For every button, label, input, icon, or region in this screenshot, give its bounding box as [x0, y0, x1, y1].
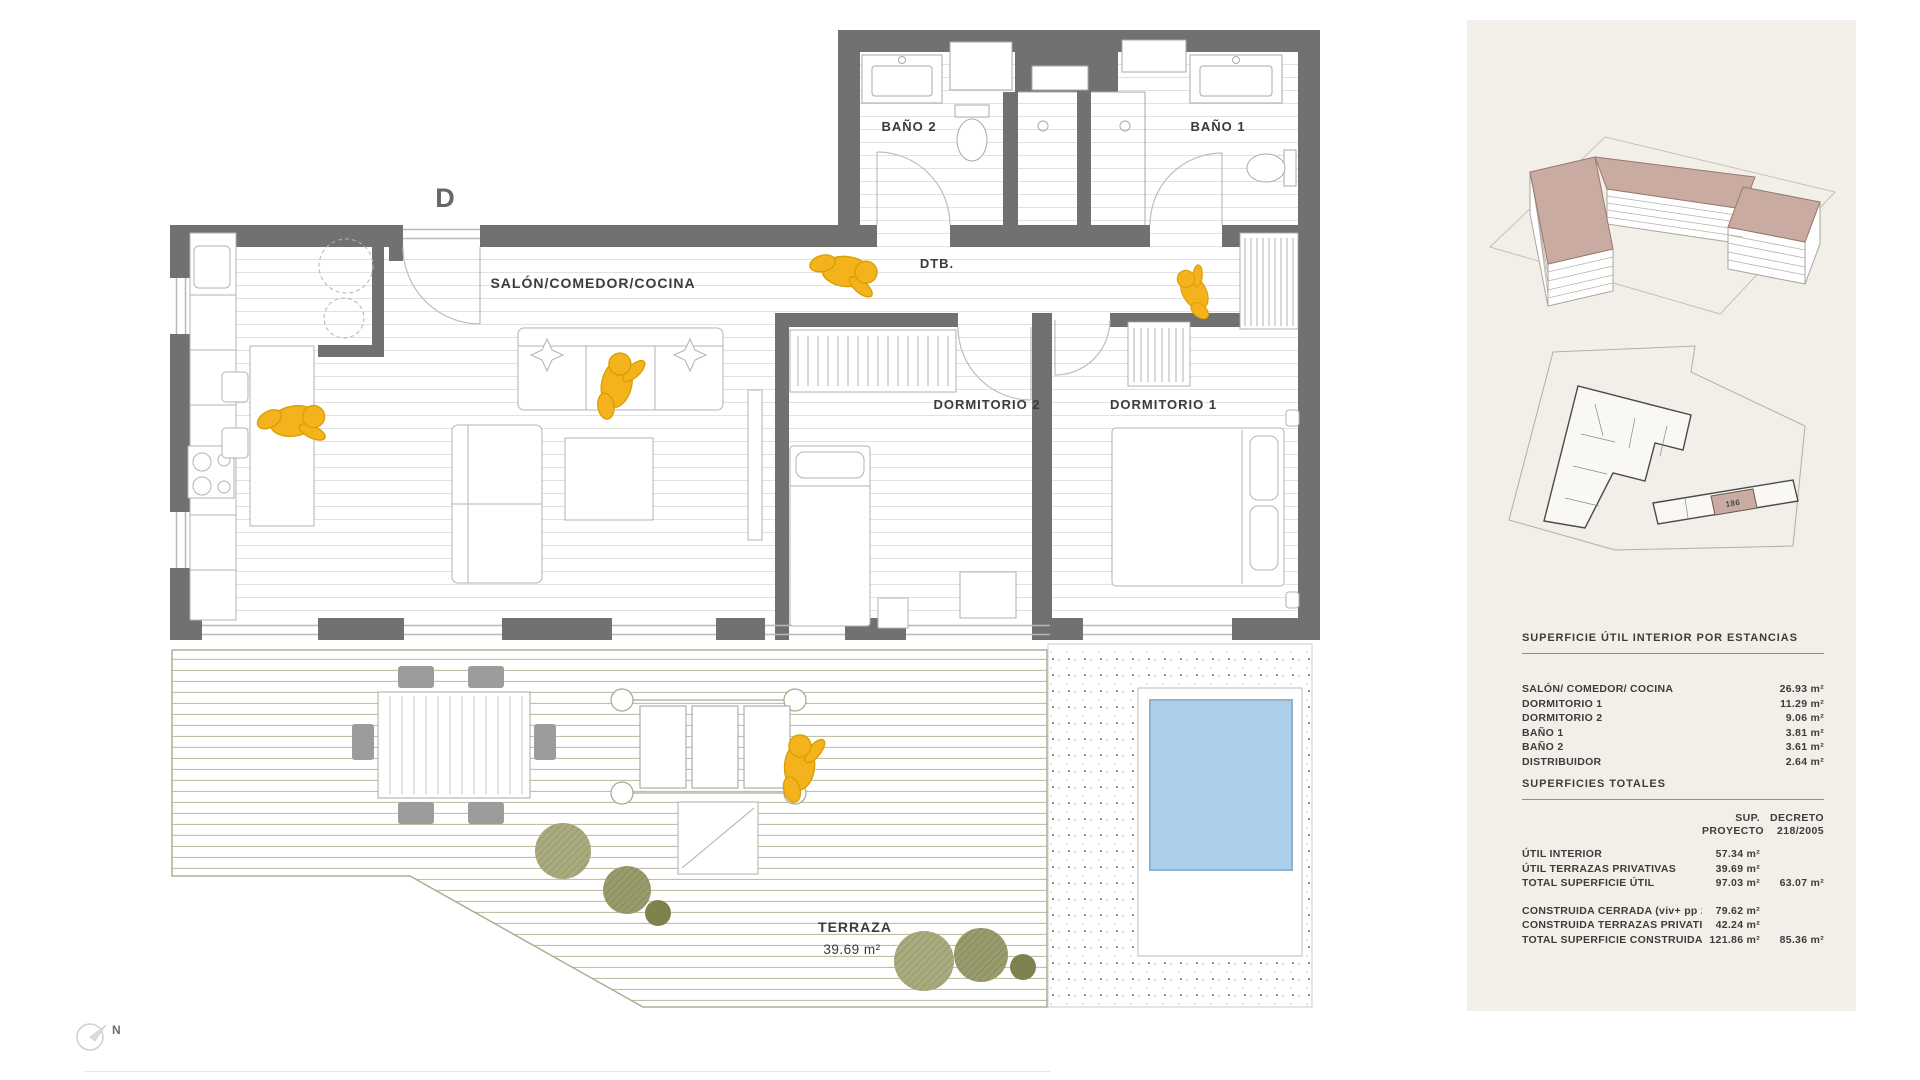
area-row: BAÑO 13.81 m² — [1522, 726, 1824, 741]
area-row-label: DORMITORIO 2 — [1522, 711, 1754, 726]
label-bano1: BAÑO 1 — [1190, 119, 1245, 134]
bedroom1-furniture — [1112, 410, 1299, 608]
label-dtb: DTB. — [920, 256, 954, 271]
area-row-label: DISTRIBUIDOR — [1522, 755, 1754, 770]
area-row-value: 3.81 m² — [1754, 726, 1824, 741]
totals-row-proyecto: 39.69 m² — [1702, 862, 1760, 877]
totals-row-proyecto: 57.34 m² — [1702, 847, 1760, 862]
totals-row-decreto: 63.07 m² — [1766, 876, 1824, 891]
floorplan-page: N D SALÓN/COMEDOR/COCINA BAÑO 2 BAÑO 1 D… — [0, 0, 1920, 1080]
terrace-daybed — [611, 689, 806, 804]
totals-table: SUPERFICIES TOTALES SUP. PROYECTO DECRET… — [1522, 778, 1824, 948]
totals-row-proyecto: 79.62 m² — [1702, 904, 1760, 919]
totals-row-label: TOTAL SUPERFICIE ÚTIL — [1522, 876, 1702, 891]
totals-row: CONSTRUIDA CERRADA (viv+ pp zzcc)79.62 m… — [1522, 904, 1824, 919]
unit-letter-label: D — [435, 183, 457, 213]
area-row: DORMITORIO 29.06 m² — [1522, 711, 1824, 726]
label-dorm2: DORMITORIO 2 — [933, 397, 1040, 412]
area-row-label: DORMITORIO 1 — [1522, 697, 1754, 712]
totals-row-label: TOTAL SUPERFICIE CONSTRUIDA — [1522, 933, 1702, 948]
col-header-proyecto: SUP. PROYECTO — [1702, 812, 1760, 838]
area-row-label: BAÑO 1 — [1522, 726, 1754, 741]
totals-row: CONSTRUIDA TERRAZAS PRIVATIVAS42.24 m² — [1522, 918, 1824, 933]
area-row-value: 2.64 m² — [1754, 755, 1824, 770]
col-header-decreto: DECRETO 218/2005 — [1766, 812, 1824, 838]
area-row-value: 9.06 m² — [1754, 711, 1824, 726]
swimming-pool — [1150, 700, 1292, 870]
info-sidebar: 186 SUPERFICIE ÚTIL INTERIOR POR ESTANCI… — [1467, 20, 1856, 1011]
page-bottom-rule — [85, 1071, 1050, 1072]
totals-row-proyecto: 97.03 m² — [1702, 876, 1760, 891]
totals-row: TOTAL SUPERFICIE CONSTRUIDA121.86 m²85.3… — [1522, 933, 1824, 948]
totals-col-headers: SUP. PROYECTO DECRETO 218/2005 — [1522, 812, 1824, 838]
totals-row-label: ÚTIL TERRAZAS PRIVATIVAS — [1522, 862, 1702, 877]
label-salon: SALÓN/COMEDOR/COCINA — [490, 274, 695, 291]
totals-table-title: SUPERFICIES TOTALES — [1522, 778, 1824, 800]
area-row: SALÓN/ COMEDOR/ COCINA26.93 m² — [1522, 682, 1824, 697]
label-bano2: BAÑO 2 — [881, 119, 936, 134]
totals-row: ÚTIL TERRAZAS PRIVATIVAS39.69 m² — [1522, 862, 1824, 877]
area-row-label: SALÓN/ COMEDOR/ COCINA — [1522, 682, 1754, 697]
floorplan-drawing: N D SALÓN/COMEDOR/COCINA BAÑO 2 BAÑO 1 D… — [0, 0, 1467, 1080]
area-row: BAÑO 23.61 m² — [1522, 740, 1824, 755]
totals-row-label: CONSTRUIDA TERRAZAS PRIVATIVAS — [1522, 918, 1702, 933]
totals-row-proyecto: 42.24 m² — [1702, 918, 1760, 933]
area-row: DORMITORIO 111.29 m² — [1522, 697, 1824, 712]
totals-row-label: ÚTIL INTERIOR — [1522, 847, 1702, 862]
label-terraza: TERRAZA — [818, 919, 892, 935]
label-terraza-area: 39.69 m² — [823, 942, 880, 957]
terrace-lounger — [678, 802, 758, 874]
room-areas-table: SUPERFICIE ÚTIL INTERIOR POR ESTANCIAS S… — [1522, 632, 1824, 770]
area-row: DISTRIBUIDOR2.64 m² — [1522, 755, 1824, 770]
north-label: N — [112, 1023, 121, 1037]
north-arrow: N — [77, 1023, 121, 1050]
label-dorm1: DORMITORIO 1 — [1110, 397, 1217, 412]
totals-row-proyecto: 121.86 m² — [1702, 933, 1760, 948]
totals-row: TOTAL SUPERFICIE ÚTIL97.03 m²63.07 m² — [1522, 876, 1824, 891]
totals-row-label: CONSTRUIDA CERRADA (viv+ pp zzcc) — [1522, 904, 1702, 919]
site-key-plan: 186 — [1495, 338, 1830, 573]
building-render — [1475, 92, 1847, 327]
area-row-value: 11.29 m² — [1754, 697, 1824, 712]
totals-row: ÚTIL INTERIOR57.34 m² — [1522, 847, 1824, 862]
area-row-value: 26.93 m² — [1754, 682, 1824, 697]
totals-row-decreto: 85.36 m² — [1766, 933, 1824, 948]
area-row-label: BAÑO 2 — [1522, 740, 1754, 755]
area-row-value: 3.61 m² — [1754, 740, 1824, 755]
areas-table-title: SUPERFICIE ÚTIL INTERIOR POR ESTANCIAS — [1522, 632, 1824, 654]
